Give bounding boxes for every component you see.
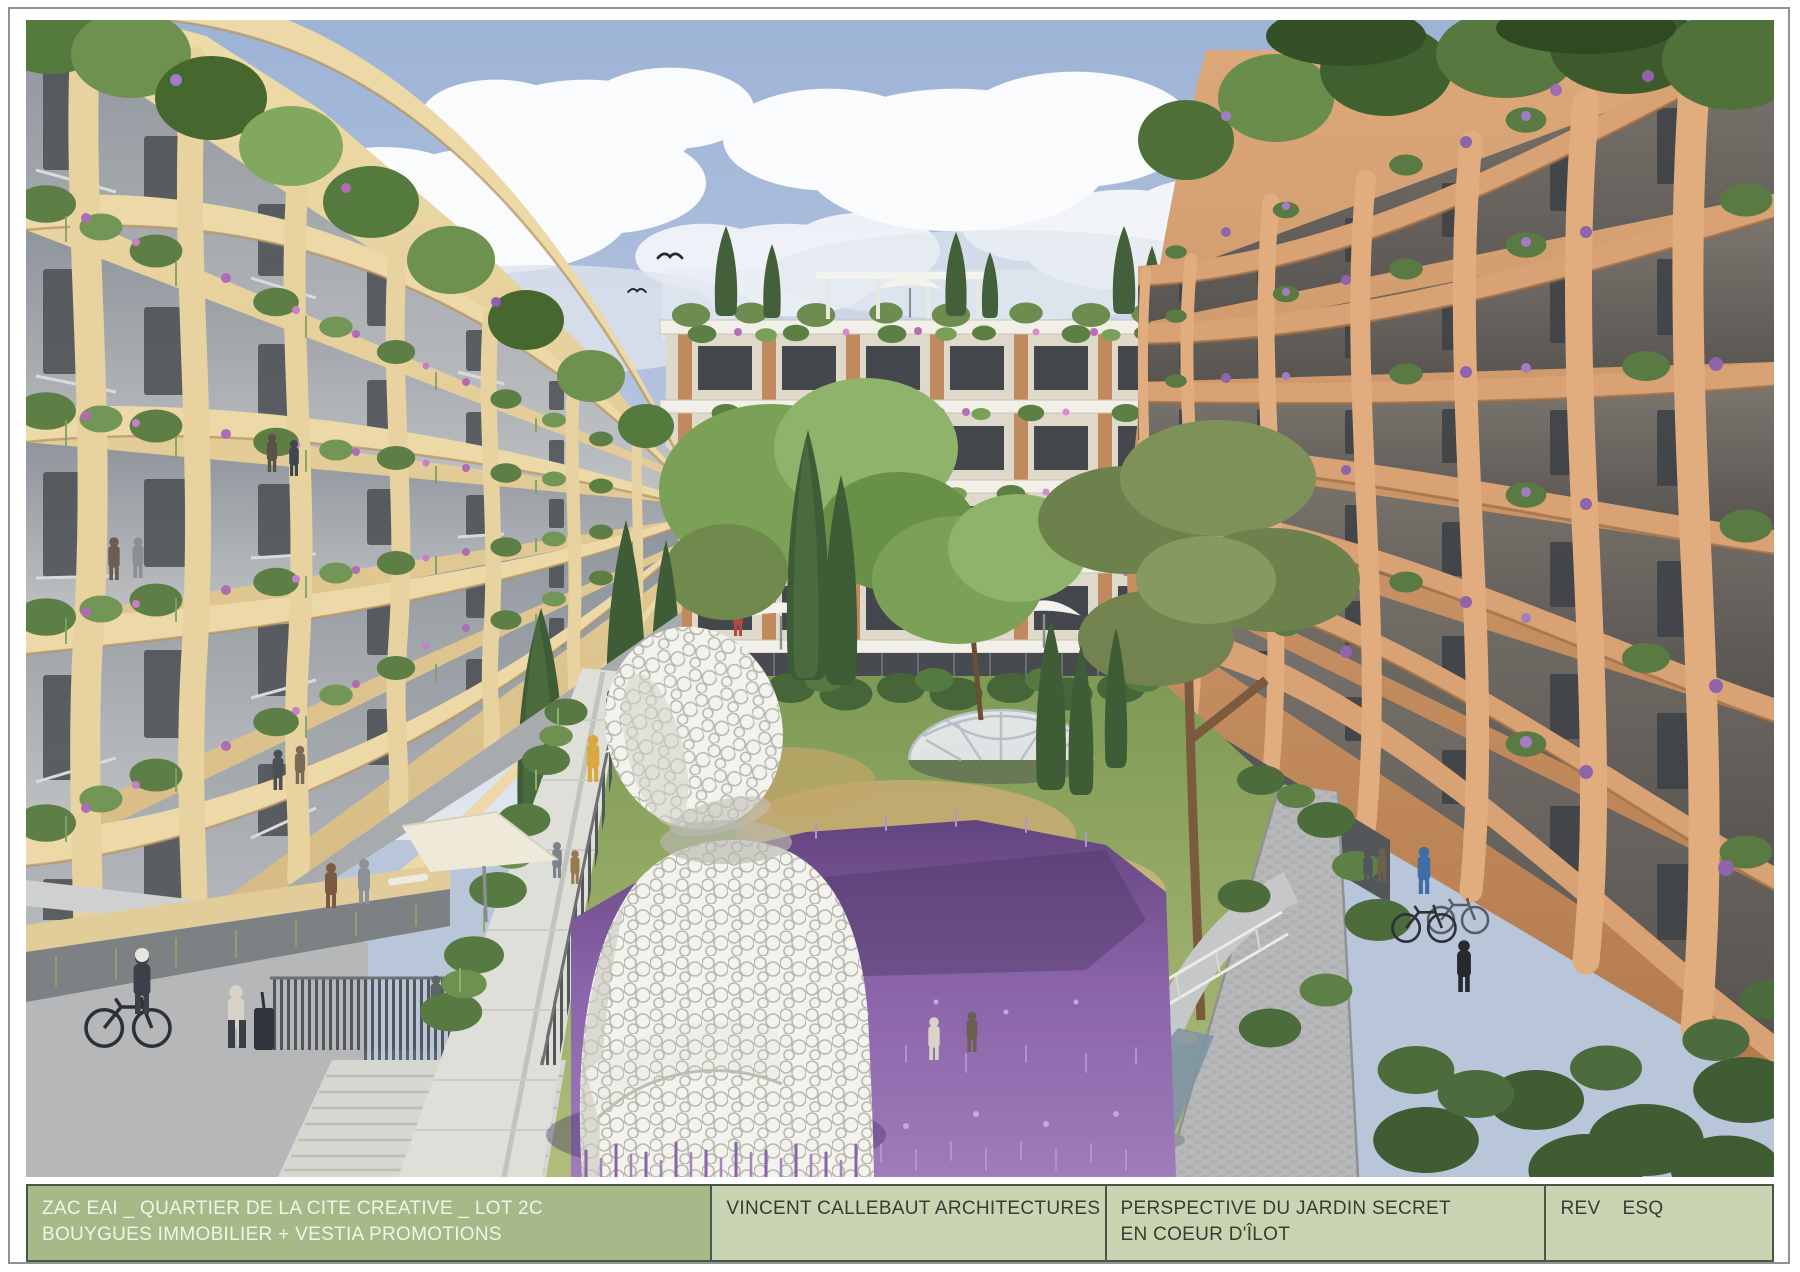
man-in-suit (1457, 940, 1471, 992)
garden-courtyard-rendering (26, 20, 1774, 1177)
title-block-project-cell: ZAC EAI _ QUARTIER DE LA CITE CREATIVE _… (28, 1186, 712, 1260)
title-block-revision-cell: REVESQ (1546, 1186, 1772, 1260)
title-block-drawing-cell: PERSPECTIVE DU JARDIN SECRET EN COEUR D'… (1107, 1186, 1547, 1260)
project-line-1: ZAC EAI _ QUARTIER DE LA CITE CREATIVE _… (42, 1196, 710, 1222)
presentation-sheet: ZAC EAI _ QUARTIER DE LA CITE CREATIVE _… (0, 0, 1800, 1272)
revision-label: REV (1560, 1198, 1600, 1219)
drawing-title-line-2: EN COEUR D'ÎLOT (1121, 1222, 1545, 1248)
project-line-2: BOUYGUES IMMOBILIER + VESTIA PROMOTIONS (42, 1222, 710, 1248)
cyclist (1418, 847, 1431, 894)
revision-code: ESQ (1622, 1198, 1663, 1219)
architect-name: VINCENT CALLEBAUT ARCHITECTURES (726, 1196, 1104, 1222)
drawing-title-line-1: PERSPECTIVE DU JARDIN SECRET (1121, 1196, 1545, 1222)
title-block: ZAC EAI _ QUARTIER DE LA CITE CREATIVE _… (26, 1184, 1774, 1262)
title-block-architect-cell: VINCENT CALLEBAUT ARCHITECTURES (712, 1186, 1106, 1260)
rendering-image (26, 20, 1774, 1177)
